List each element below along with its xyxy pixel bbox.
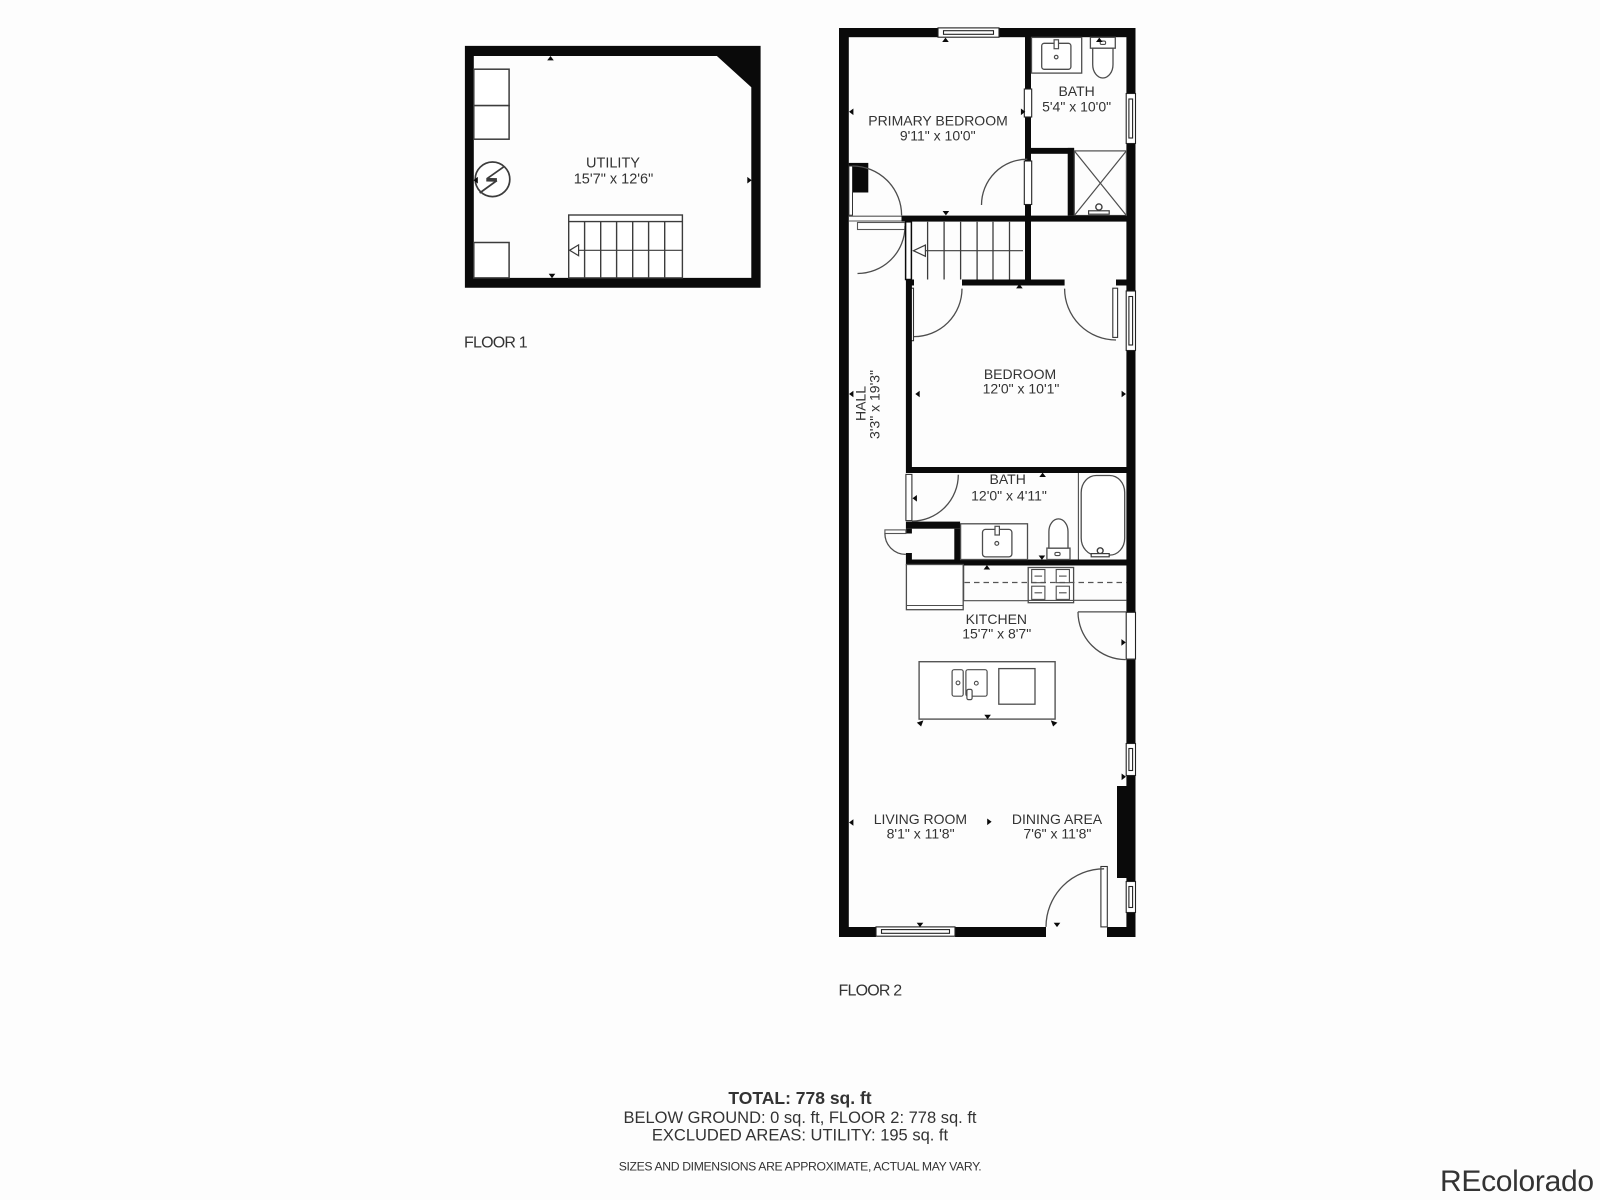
svg-text:REcolorado: REcolorado xyxy=(1440,1165,1594,1198)
svg-text:UTILITY: UTILITY xyxy=(586,156,640,172)
svg-text:BATH: BATH xyxy=(990,471,1026,487)
svg-text:15'7" x 12'6": 15'7" x 12'6" xyxy=(574,171,654,187)
svg-text:EXCLUDED AREAS: UTILITY: 195 s: EXCLUDED AREAS: UTILITY: 195 sq. ft xyxy=(652,1126,949,1144)
svg-text:12'0" x 4'11": 12'0" x 4'11" xyxy=(971,487,1047,503)
svg-text:PRIMARY BEDROOM: PRIMARY BEDROOM xyxy=(868,113,1008,129)
svg-text:TOTAL: 778 sq. ft: TOTAL: 778 sq. ft xyxy=(728,1088,871,1108)
svg-text:3'3" x 19'3": 3'3" x 19'3" xyxy=(867,370,883,439)
svg-text:BELOW GROUND: 0 sq. ft, FLOOR: BELOW GROUND: 0 sq. ft, FLOOR 2: 778 sq.… xyxy=(623,1109,976,1127)
svg-text:12'0" x 10'1": 12'0" x 10'1" xyxy=(983,381,1060,397)
svg-text:5'4" x 10'0": 5'4" x 10'0" xyxy=(1042,99,1111,115)
svg-text:BATH: BATH xyxy=(1058,83,1094,99)
svg-text:15'7" x 8'7": 15'7" x 8'7" xyxy=(962,625,1031,641)
svg-text:8'1" x 11'8": 8'1" x 11'8" xyxy=(887,826,955,842)
svg-text:SIZES AND DIMENSIONS ARE APPRO: SIZES AND DIMENSIONS ARE APPROXIMATE, AC… xyxy=(619,1159,982,1173)
svg-text:FLOOR 2: FLOOR 2 xyxy=(839,983,903,1000)
svg-text:7'6" x 11'8": 7'6" x 11'8" xyxy=(1023,826,1091,842)
svg-text:9'11" x 10'0": 9'11" x 10'0" xyxy=(900,127,976,143)
svg-text:BEDROOM: BEDROOM xyxy=(984,366,1056,382)
svg-text:FLOOR 1: FLOOR 1 xyxy=(464,335,528,352)
